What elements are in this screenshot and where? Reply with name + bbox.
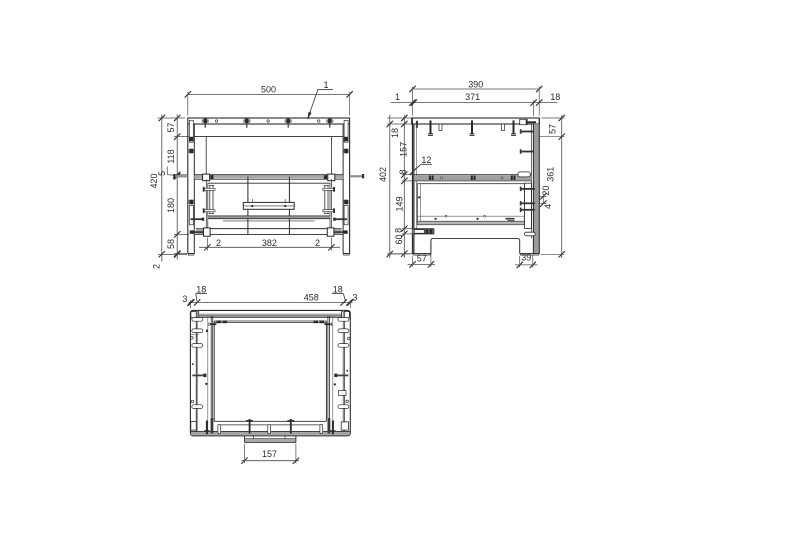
svg-text:157: 157 — [398, 142, 408, 157]
svg-text:500: 500 — [261, 85, 276, 95]
svg-text:58: 58 — [166, 239, 176, 249]
svg-text:60: 60 — [394, 234, 404, 244]
svg-text:402: 402 — [378, 167, 388, 182]
svg-text:382: 382 — [262, 238, 277, 248]
svg-text:157: 157 — [262, 449, 277, 459]
svg-text:57: 57 — [547, 124, 557, 134]
svg-text:8: 8 — [394, 228, 404, 233]
svg-text:12: 12 — [421, 155, 431, 165]
svg-text:1: 1 — [323, 80, 328, 90]
svg-text:5: 5 — [157, 171, 167, 176]
svg-text:18: 18 — [550, 92, 560, 102]
svg-text:18: 18 — [390, 128, 400, 138]
svg-text:2: 2 — [216, 238, 221, 248]
svg-text:18: 18 — [196, 284, 206, 294]
svg-text:390: 390 — [468, 79, 483, 89]
svg-text:458: 458 — [304, 293, 319, 303]
svg-text:180: 180 — [166, 198, 176, 213]
svg-text:118: 118 — [166, 149, 176, 163]
svg-text:371: 371 — [465, 92, 480, 102]
svg-text:18: 18 — [333, 285, 343, 295]
svg-text:57: 57 — [166, 122, 176, 132]
svg-text:149: 149 — [395, 196, 405, 211]
svg-text:1: 1 — [395, 92, 400, 102]
svg-text:3: 3 — [182, 294, 187, 304]
svg-text:4: 4 — [543, 204, 553, 209]
svg-text:3: 3 — [352, 292, 357, 302]
svg-text:361: 361 — [546, 167, 556, 182]
svg-text:2: 2 — [152, 264, 162, 269]
svg-text:8: 8 — [398, 169, 408, 174]
svg-text:2: 2 — [315, 238, 320, 248]
